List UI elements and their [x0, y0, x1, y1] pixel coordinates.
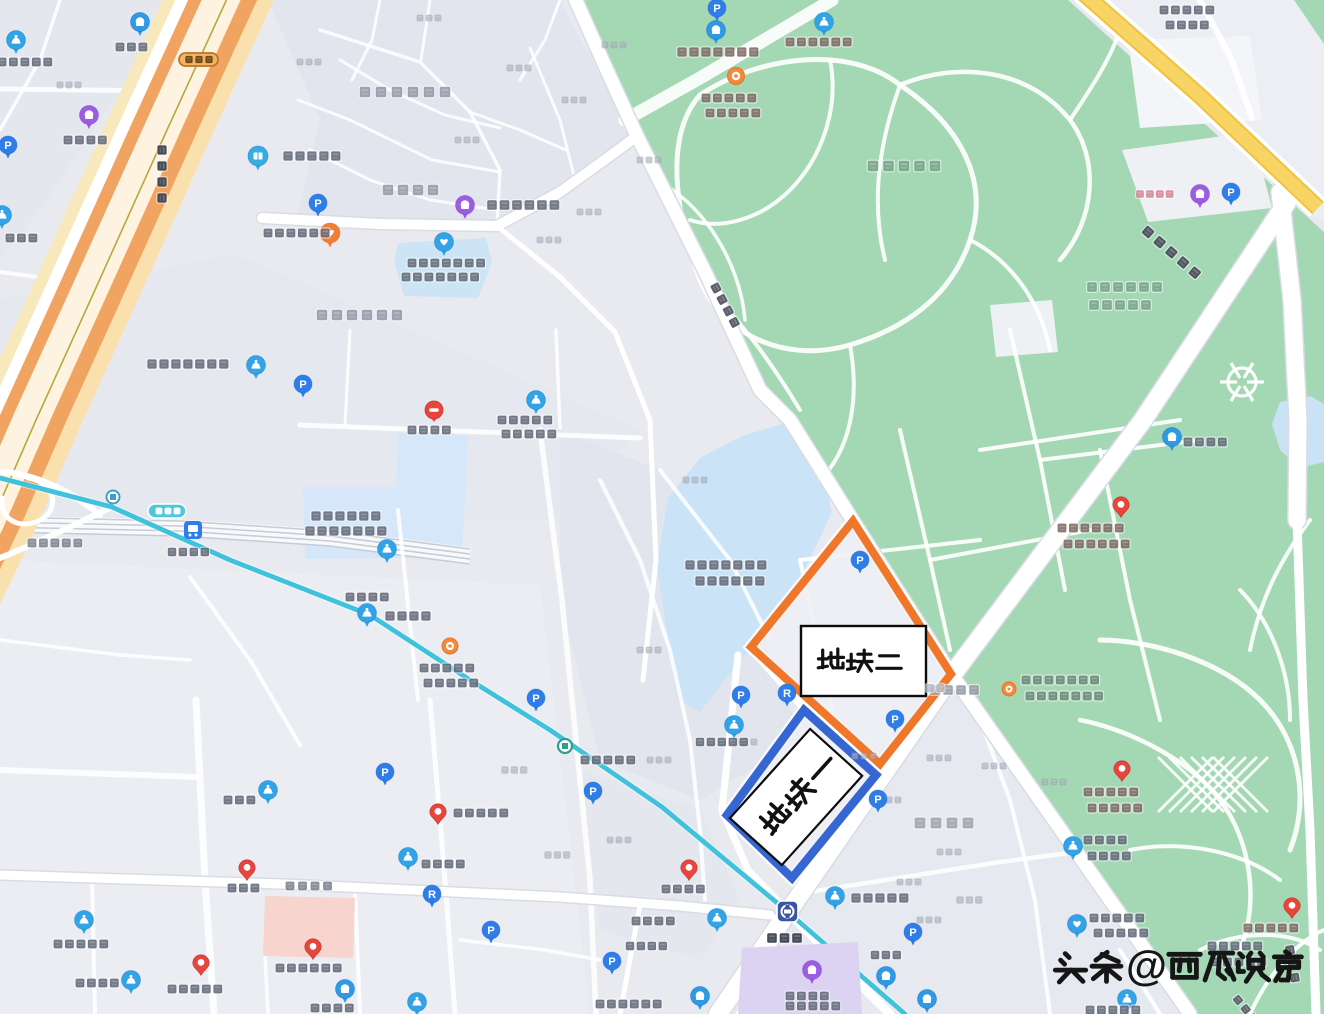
svg-text:P: P [487, 925, 495, 937]
svg-text:P: P [891, 714, 899, 726]
svg-text:P: P [909, 927, 917, 939]
svg-text:P: P [1227, 187, 1235, 199]
svg-text:@: @ [1126, 942, 1167, 989]
svg-text:P: P [737, 690, 745, 702]
svg-text:P: P [4, 140, 12, 152]
svg-text:P: P [299, 379, 307, 391]
svg-text:P: P [314, 198, 322, 210]
svg-text:P: P [532, 693, 540, 705]
svg-text:P: P [856, 555, 864, 567]
svg-text:R: R [428, 889, 436, 901]
svg-text:R: R [783, 688, 791, 700]
svg-text:P: P [874, 794, 882, 806]
svg-text:P: P [608, 956, 616, 968]
svg-text:P: P [589, 786, 597, 798]
svg-text:P: P [713, 3, 721, 15]
svg-text:P: P [381, 767, 389, 779]
